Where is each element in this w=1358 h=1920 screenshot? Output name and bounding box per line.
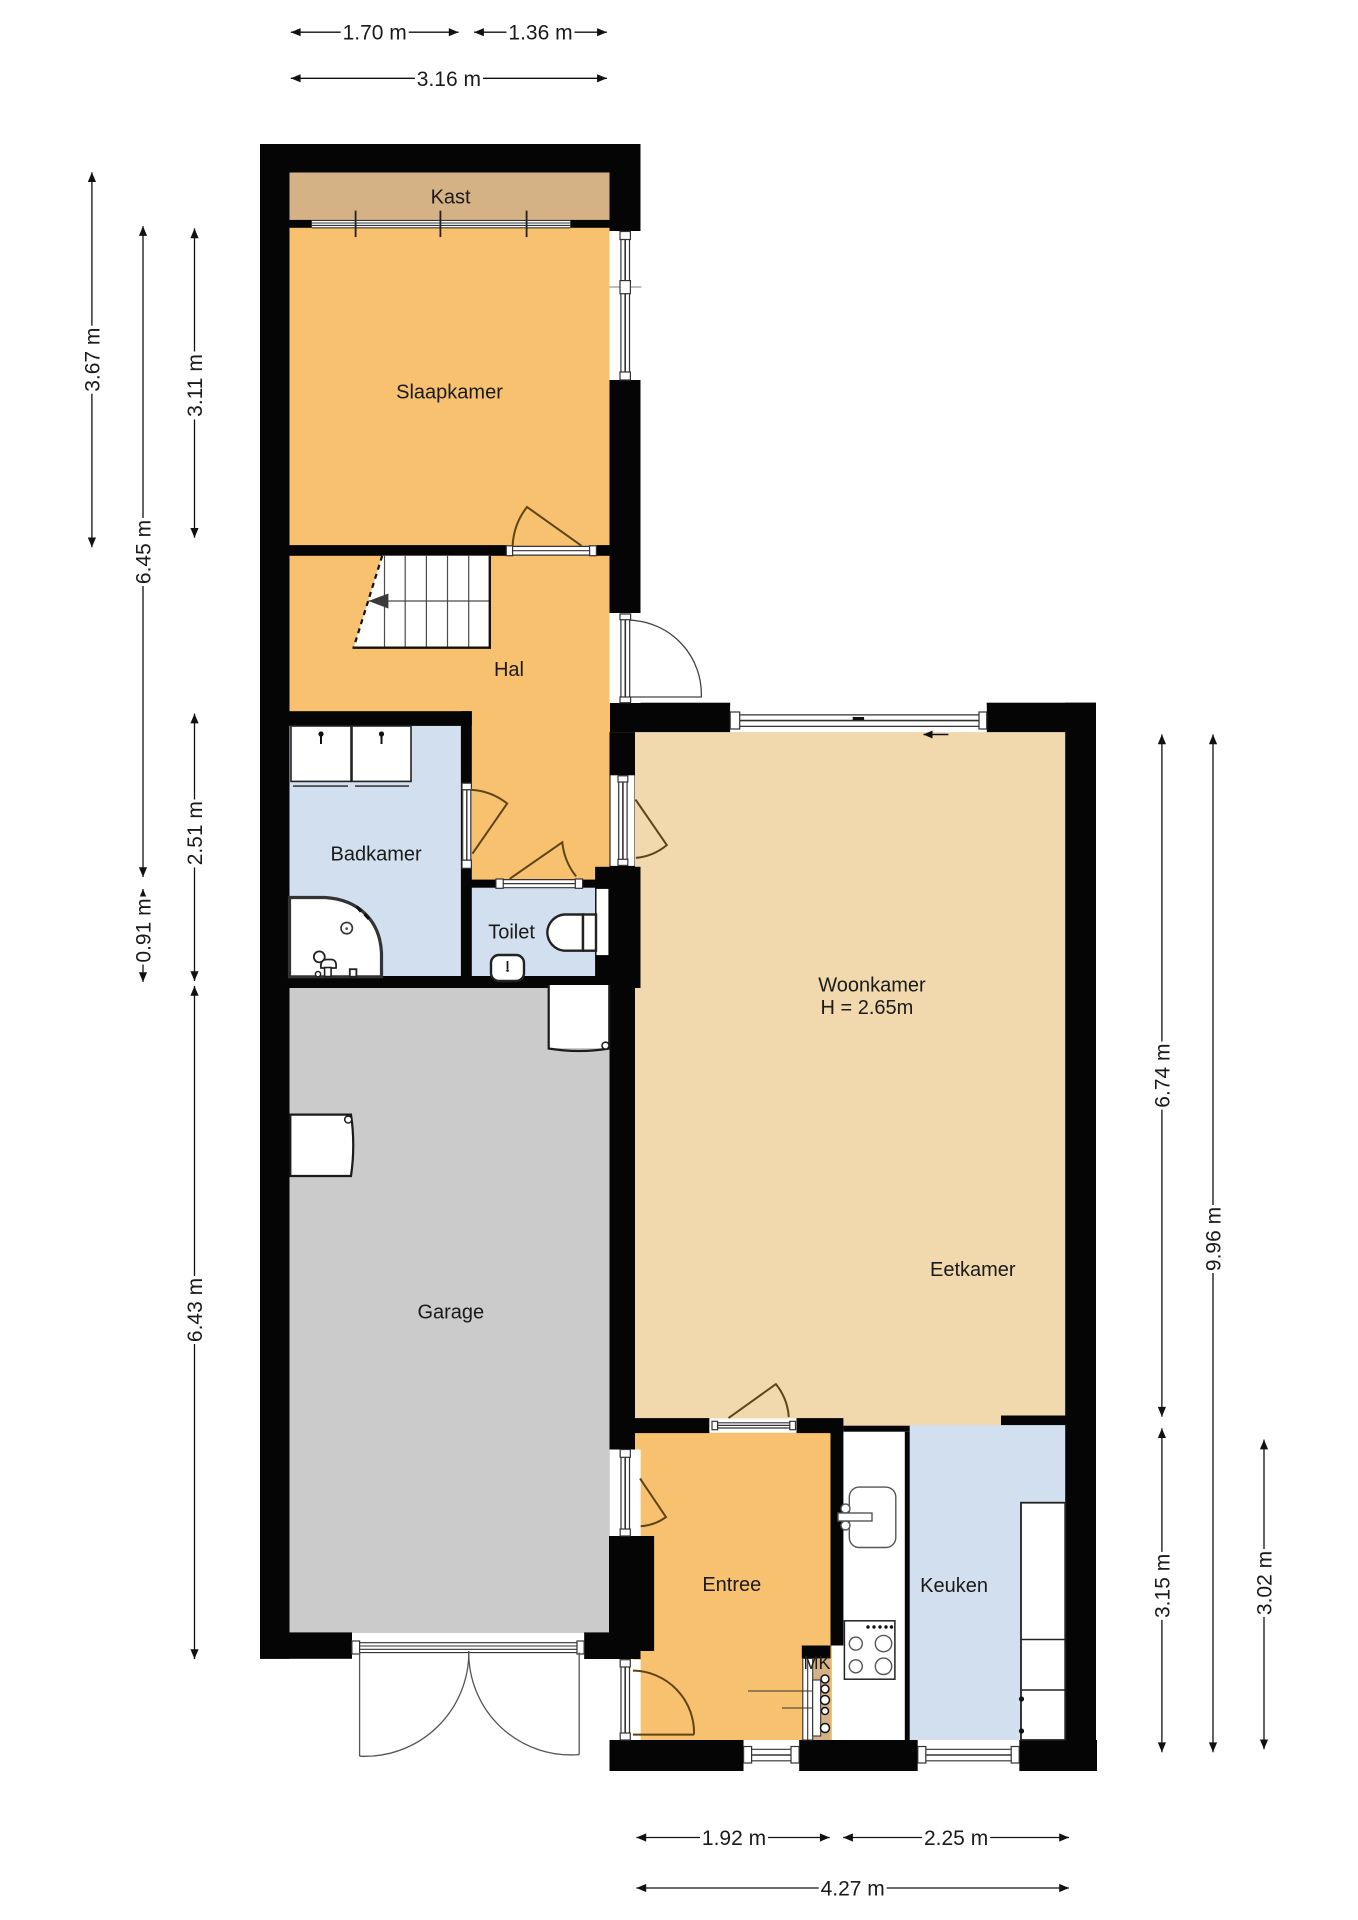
svg-text:1.92 m: 1.92 m bbox=[702, 1827, 766, 1850]
svg-text:6.43 m: 6.43 m bbox=[184, 1278, 207, 1342]
svg-text:9.96 m: 9.96 m bbox=[1203, 1207, 1226, 1271]
svg-text:6.45 m: 6.45 m bbox=[133, 520, 156, 584]
svg-text:Hal: Hal bbox=[494, 659, 524, 681]
svg-text:3.02 m: 3.02 m bbox=[1254, 1551, 1277, 1615]
svg-text:3.16 m: 3.16 m bbox=[417, 68, 481, 91]
svg-text:Slaapkamer: Slaapkamer bbox=[396, 382, 503, 404]
svg-text:0.91 m: 0.91 m bbox=[133, 898, 156, 962]
svg-text:3.11 m: 3.11 m bbox=[184, 354, 207, 417]
svg-text:1.70 m: 1.70 m bbox=[343, 22, 407, 45]
svg-text:2.25 m: 2.25 m bbox=[924, 1827, 988, 1850]
svg-text:Keuken: Keuken bbox=[920, 1575, 988, 1597]
svg-text:Toilet: Toilet bbox=[488, 922, 535, 944]
svg-text:3.67 m: 3.67 m bbox=[81, 328, 104, 392]
svg-text:2.51 m: 2.51 m bbox=[184, 801, 207, 865]
svg-text:4.27 m: 4.27 m bbox=[821, 1878, 885, 1901]
svg-text:Entree: Entree bbox=[702, 1574, 761, 1596]
svg-text:Badkamer: Badkamer bbox=[331, 843, 422, 865]
svg-text:1.36 m: 1.36 m bbox=[508, 22, 572, 45]
svg-text:H = 2.65m: H = 2.65m bbox=[820, 997, 913, 1019]
svg-text:Kast: Kast bbox=[431, 187, 471, 209]
svg-text:MK: MK bbox=[804, 1653, 831, 1673]
svg-text:3.15 m: 3.15 m bbox=[1151, 1554, 1174, 1618]
svg-text:Woonkamer: Woonkamer bbox=[818, 974, 926, 996]
svg-text:6.74 m: 6.74 m bbox=[1151, 1043, 1174, 1107]
svg-text:Garage: Garage bbox=[417, 1301, 484, 1323]
svg-text:Eetkamer: Eetkamer bbox=[930, 1259, 1016, 1281]
